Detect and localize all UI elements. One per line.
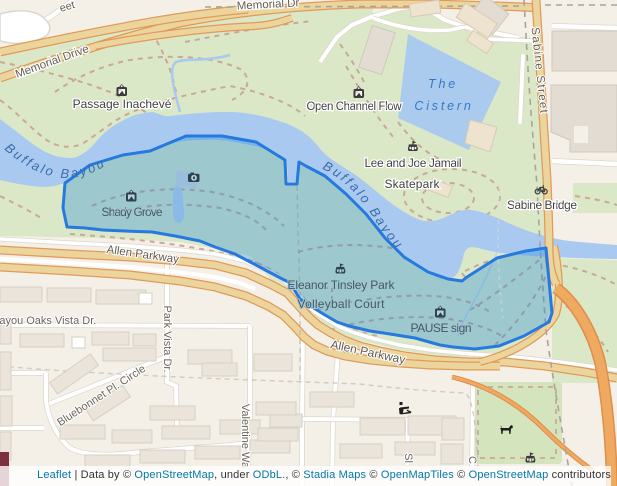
svg-text:Park Vista Dr.: Park Vista Dr. [161,305,173,372]
svg-text:PAUSE sign: PAUSE sign [411,321,472,335]
svg-text:Lee and Joe Jamail: Lee and Joe Jamail [365,156,462,170]
svg-text:Volleyball Court: Volleyball Court [298,297,386,311]
svg-text:C: C [466,456,478,464]
svg-text:Valentine Wa: Valentine Wa [239,404,251,469]
svg-text:Eleanor Tinsley Park: Eleanor Tinsley Park [288,278,396,292]
svg-text:Bayou Oaks Vista Dr.: Bayou Oaks Vista Dr. [0,315,96,327]
svg-text:Sl: Sl [402,453,414,463]
svg-text:Open Channel Flow: Open Channel Flow [307,101,403,113]
svg-text:The: The [428,77,458,91]
svg-text:Sabine Bridge: Sabine Bridge [507,198,577,212]
svg-text:Cistern: Cistern [414,99,473,113]
svg-text:Passage Inachevé: Passage Inachevé [73,97,172,111]
svg-text:Skatepark: Skatepark [385,177,441,191]
svg-text:Shady Grove: Shady Grove [102,205,163,219]
